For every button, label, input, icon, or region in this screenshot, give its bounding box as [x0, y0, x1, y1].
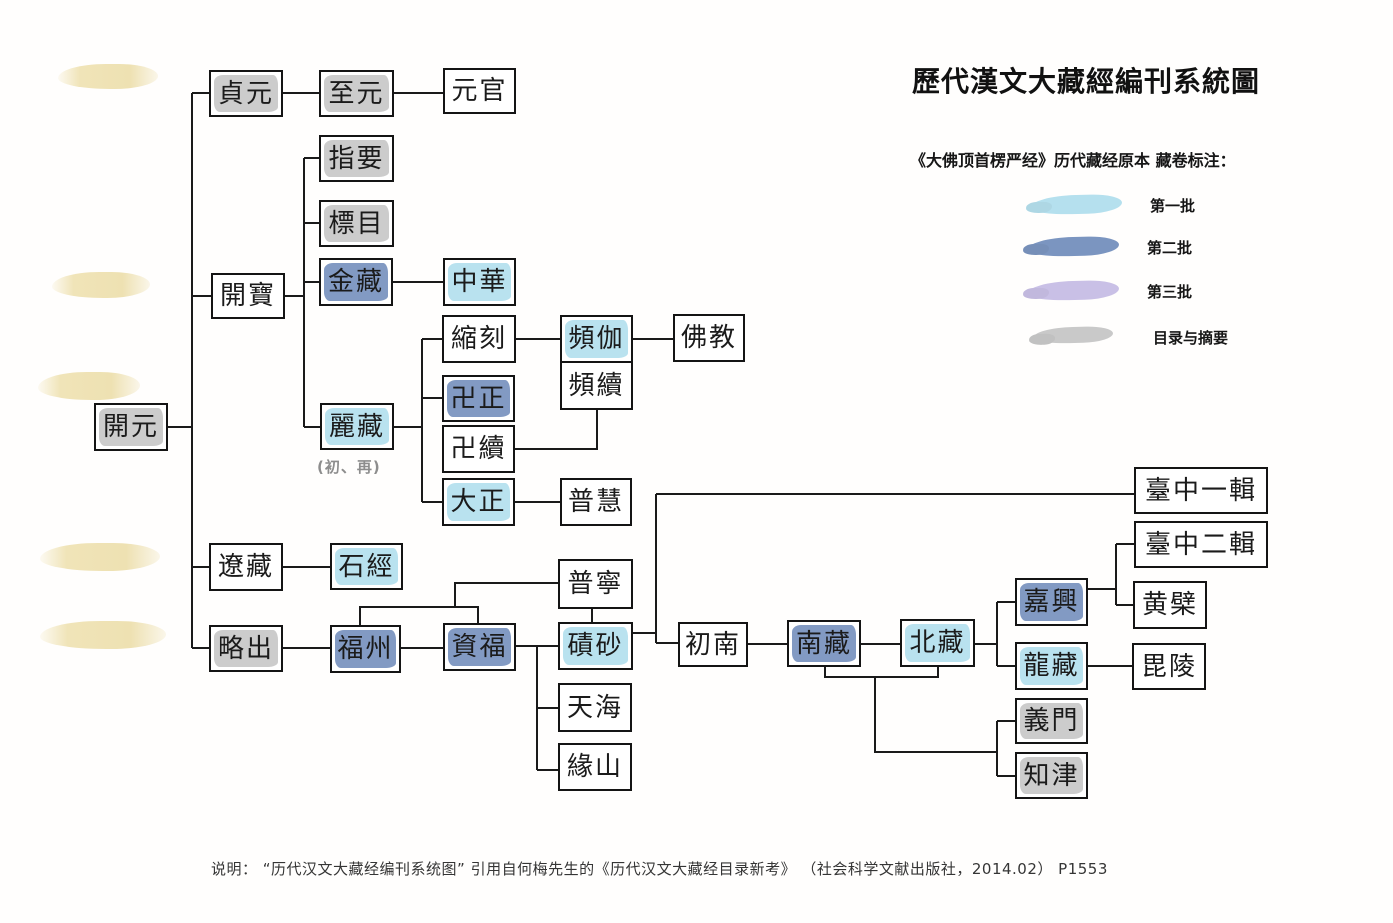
- legend-label-first: 第一批: [1150, 195, 1195, 216]
- node-label: 略出: [218, 636, 274, 662]
- node-zhiyao: 指要: [319, 135, 394, 182]
- node-lizang: 麗藏: [320, 403, 394, 450]
- node-yimen: 義門: [1015, 698, 1088, 744]
- legend-row-third: 第三批: [1027, 281, 1327, 303]
- node-dazheng: 大正: [442, 478, 515, 526]
- node-label: 石經: [338, 554, 394, 580]
- node-label: 佛教: [681, 325, 737, 351]
- node-label: 指要: [328, 146, 384, 172]
- node-label: 龍藏: [1023, 653, 1079, 679]
- legend-heading: 《大佛顶首楞严经》历代藏经原本 藏卷标注：: [910, 147, 1236, 171]
- node-zifu: 資福: [443, 623, 516, 671]
- node-label: 金藏: [328, 269, 384, 295]
- node-taizhong2: 臺中二輯: [1134, 521, 1268, 568]
- node-label: 福州: [337, 636, 393, 662]
- node-zhonghua: 中華: [443, 258, 516, 306]
- node-fojiao: 佛教: [673, 314, 745, 362]
- node-wanxu: 卍續: [442, 425, 515, 473]
- node-label: 臺中二輯: [1145, 532, 1257, 558]
- node-label: 黄檗: [1142, 592, 1198, 618]
- node-label: 頻續: [568, 373, 624, 399]
- node-label: 義門: [1023, 708, 1079, 734]
- node-label: 天海: [567, 695, 623, 721]
- node-label: 臺中一輯: [1145, 478, 1257, 504]
- node-label: 標目: [328, 211, 384, 237]
- node-shijing: 石經: [330, 543, 403, 590]
- node-kaibao: 開寶: [211, 273, 285, 319]
- node-label: 知津: [1023, 763, 1079, 789]
- node-label: 緣山: [567, 754, 623, 780]
- node-longzang: 龍藏: [1015, 642, 1088, 690]
- node-label: 頻伽: [568, 326, 624, 352]
- node-jiaxing: 嘉興: [1015, 578, 1088, 626]
- legend-swatch-third-icon: [1027, 280, 1119, 301]
- node-label: 普寧: [567, 571, 623, 597]
- legend-swatch-first-icon: [1030, 194, 1122, 215]
- node-label: 初南: [685, 632, 741, 658]
- node-beizang: 北藏: [900, 619, 975, 667]
- node-jinzang: 金藏: [319, 258, 393, 306]
- node-biaomu: 標目: [319, 200, 394, 247]
- node-piling: 毘陵: [1132, 643, 1206, 690]
- node-label: 毘陵: [1141, 654, 1197, 680]
- node-chunan: 初南: [678, 622, 748, 667]
- node-lvechu: 略出: [209, 625, 283, 672]
- node-label: 大正: [450, 489, 506, 515]
- connector-line: [455, 583, 558, 607]
- node-pinxu: 頻續: [560, 361, 633, 410]
- node-label: 南藏: [796, 631, 852, 657]
- node-fuzhou: 福州: [330, 625, 401, 673]
- page-title: 歷代漢文大藏經編刊系統圖: [912, 60, 1260, 100]
- legend-row-first: 第一批: [1030, 195, 1330, 217]
- legend-row-second: 第二批: [1027, 237, 1327, 259]
- connector-line: [875, 677, 997, 752]
- node-label: 至元: [328, 81, 384, 107]
- diagram-connectors: [0, 0, 1393, 923]
- node-puhui: 普慧: [560, 478, 632, 526]
- legend-label-second: 第二批: [1147, 237, 1192, 258]
- legend-label-third: 第三批: [1147, 281, 1192, 302]
- node-zhiyuan: 至元: [319, 70, 394, 117]
- node-qisha: 磧砂: [558, 622, 633, 670]
- node-label: 資福: [451, 634, 507, 660]
- node-yuanguan: 元官: [443, 68, 516, 114]
- legend-label-catalog: 目录与摘要: [1153, 327, 1228, 348]
- node-liaozang: 遼藏: [209, 543, 283, 591]
- node-zhenyuan: 貞元: [209, 70, 283, 117]
- node-label: 北藏: [909, 630, 965, 656]
- node-label: 元官: [451, 78, 507, 104]
- node-label: 麗藏: [329, 414, 385, 440]
- source-caption: 说明： “历代汉文大藏经编刊系统图” 引用自何梅先生的《历代汉文大藏经目录新考》…: [211, 858, 1108, 879]
- legend-swatch-catalog-icon: [1033, 326, 1113, 344]
- node-label: 磧砂: [567, 633, 623, 659]
- node-suoke: 縮刻: [442, 315, 516, 363]
- legend-swatch-second-icon: [1027, 236, 1119, 257]
- scanned-diagram-page: 開元貞元至元元官指要標目金藏中華開寶縮刻頻伽佛教頻續卍正麗藏卍續大正普慧遼藏石經…: [0, 0, 1393, 923]
- node-label: 開元: [103, 414, 159, 440]
- node-label: 中華: [451, 269, 507, 295]
- node-wanzheng: 卍正: [442, 375, 515, 422]
- node-label: 卍續: [450, 436, 506, 462]
- node-kaiyuan: 開元: [94, 403, 168, 451]
- node-label: 縮刻: [451, 326, 507, 352]
- connector-line: [515, 410, 597, 449]
- node-taizhong1: 臺中一輯: [1134, 467, 1268, 514]
- node-zhijin: 知津: [1015, 752, 1088, 799]
- node-huangbo: 黄檗: [1133, 581, 1207, 629]
- lizang-edition-note: (初、再): [317, 456, 381, 477]
- node-pinqie: 頻伽: [560, 315, 633, 363]
- node-label: 卍正: [450, 386, 506, 412]
- node-yuanshan: 緣山: [558, 743, 632, 791]
- node-label: 開寶: [220, 283, 276, 309]
- node-nanzang: 南藏: [787, 620, 861, 667]
- connector-line: [825, 667, 938, 677]
- node-label: 普慧: [568, 489, 624, 515]
- node-label: 嘉興: [1023, 589, 1079, 615]
- node-label: 貞元: [218, 81, 274, 107]
- node-puning: 普寧: [558, 559, 633, 609]
- legend-row-catalog: 目录与摘要: [1033, 327, 1333, 349]
- node-tianhai: 天海: [558, 683, 632, 732]
- node-label: 遼藏: [218, 554, 274, 580]
